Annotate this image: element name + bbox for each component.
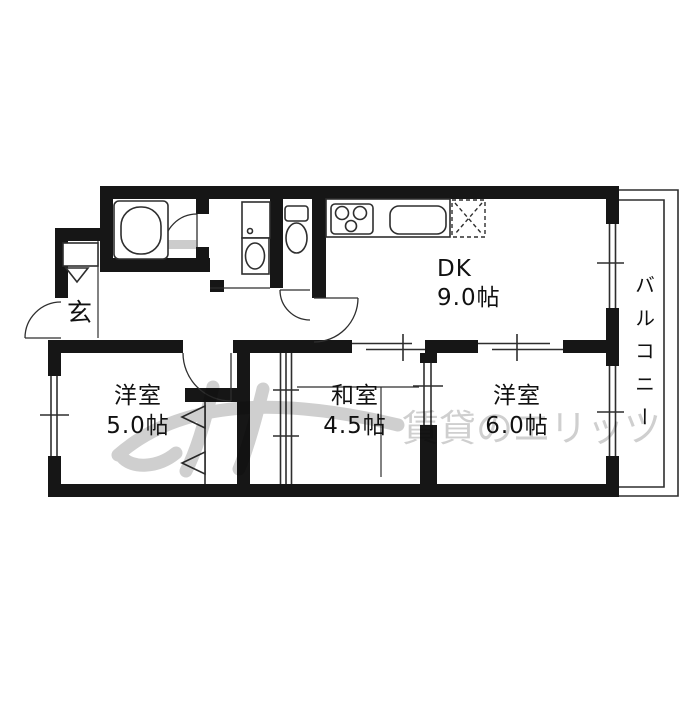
shoe-cabinet-icon [63,243,98,282]
closet-japanese-sliding-door [273,353,299,484]
toilet-icon [285,206,308,253]
floorplan: 賃貸のエリッツ 玄 DK 9.0帖 洋室 5.0帖 和室 4.5帖 洋室 6.0… [0,0,700,700]
closet-west5 [182,402,205,484]
bathroom-door-swing-arc [164,214,197,249]
entrance-label: 玄 [67,293,92,329]
west6-name: 洋室 [485,381,549,411]
dk-door-swing-arc [314,298,358,342]
dk-name: DK [437,255,501,284]
balcony-label: バルコニー [630,275,659,440]
japanese45-area: 4.5帖 [323,411,387,441]
sink-icon [390,206,446,234]
japanese45-label: 和室 4.5帖 [323,381,387,441]
dk-label: DK 9.0帖 [437,255,501,313]
sliding-door-dk-japanese [352,334,425,361]
japanese45-name: 和室 [323,381,387,411]
window-west6-balcony [597,366,624,456]
window-west5 [40,376,69,456]
refrigerator-space-icon [452,200,485,237]
sliding-door-japanese-west6 [413,363,443,425]
west5-label: 洋室 5.0帖 [106,381,170,441]
washbasin-icon [242,202,270,274]
floorplan-drawing [0,0,700,700]
bathtub-icon [114,201,168,259]
sliding-door-dk-west6 [478,334,563,361]
toilet-door-swing-arc [280,290,310,320]
west6-label: 洋室 6.0帖 [485,381,549,441]
window-dk-balcony [597,224,624,308]
dk-area: 9.0帖 [437,284,501,313]
west5-area: 5.0帖 [106,411,170,441]
stove-icon [331,204,373,234]
entrance-door-swing-arc [25,302,61,338]
west6-area: 6.0帖 [485,411,549,441]
west5-name: 洋室 [106,381,170,411]
